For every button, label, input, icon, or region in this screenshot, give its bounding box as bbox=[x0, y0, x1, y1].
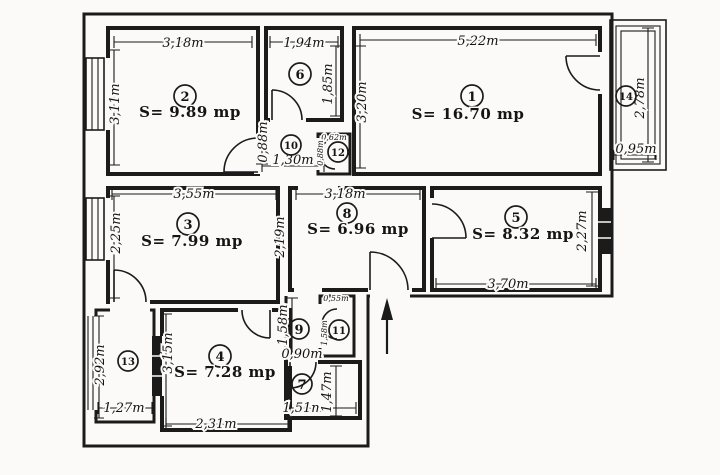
room-9-number: 9 bbox=[294, 323, 303, 338]
dim-room6-width: 1,94m bbox=[283, 36, 324, 51]
room-6-number: 6 bbox=[295, 68, 304, 83]
dim-room11-width: 0,55m bbox=[323, 294, 349, 303]
room-12-number: 12 bbox=[331, 148, 345, 159]
opening-room1-balcony bbox=[596, 52, 604, 94]
dim-hall10-height: 0,88m bbox=[256, 121, 271, 162]
opening-room3 bbox=[110, 298, 150, 306]
dim-room2-height: 3,11m bbox=[108, 83, 123, 124]
floor-plan-page: 3,18m 3,11m 1,94m 1,85m 5,22m 3,20m 2,78… bbox=[0, 0, 720, 475]
room-1-area: S= 16.70 mp bbox=[412, 105, 525, 123]
dim-balcony14-width: 0,95m bbox=[615, 142, 656, 157]
opening-entrance bbox=[368, 286, 412, 294]
room-7-number: 7 bbox=[297, 378, 306, 393]
room-4-area: S= 7.28 mp bbox=[174, 363, 276, 381]
window-room5 bbox=[598, 208, 611, 254]
room-3-number: 3 bbox=[183, 218, 192, 233]
room-11-number: 11 bbox=[332, 326, 346, 337]
dim-room5-width: 3,70m bbox=[487, 277, 528, 292]
dim-corridor9-height: 1,58m bbox=[276, 304, 291, 345]
opening-room4 bbox=[238, 306, 272, 314]
dim-room3-width: 3,55m bbox=[173, 187, 214, 202]
dim-room12-width: 0,62m bbox=[321, 133, 347, 142]
opening-corridor9 bbox=[294, 286, 322, 294]
dim-room1-width: 5,22m bbox=[457, 34, 498, 49]
dim-room3-height-right: 2,19m bbox=[273, 216, 288, 258]
dim-room7-height: 1,47m bbox=[320, 371, 335, 412]
dim-room3-height-left: 2,25m bbox=[109, 212, 124, 254]
room-3-area: S= 7.99 mp bbox=[141, 232, 243, 250]
room-10-number: 10 bbox=[284, 141, 298, 152]
opening-room6 bbox=[270, 116, 306, 124]
dim-room11-height: 1,58m bbox=[320, 320, 329, 346]
dim-room4-width: 2,31m bbox=[194, 417, 236, 432]
dim-room5-height: 2,27m bbox=[575, 210, 590, 252]
dim-balcony13-width: 1,27m bbox=[103, 401, 144, 416]
dim-room7-width: 1,51m bbox=[282, 401, 323, 416]
dim-balcony13-height: 2,92m bbox=[93, 344, 108, 386]
dim-room12-height: 0,88m bbox=[316, 140, 325, 166]
dim-room1-height: 3,20m bbox=[355, 81, 370, 122]
room-13-number: 13 bbox=[121, 357, 135, 368]
dim-room7-top: 0,90m bbox=[281, 347, 322, 362]
dim-room6-height: 1,85m bbox=[321, 63, 336, 104]
dim-hall8-width: 3,18m bbox=[324, 187, 365, 202]
dim-room2-width: 3,18m bbox=[162, 36, 203, 51]
room-5-number: 5 bbox=[511, 211, 520, 226]
room-5-area: S= 8.32 mp bbox=[472, 225, 574, 243]
room-14-number: 14 bbox=[619, 92, 633, 103]
room-1-number: 1 bbox=[467, 90, 476, 105]
floor-plan-canvas: 3,18m 3,11m 1,94m 1,85m 5,22m 3,20m 2,78… bbox=[0, 0, 720, 475]
hall-8-area: S= 6.96 mp bbox=[307, 220, 409, 238]
room-2-area: S= 9.89 mp bbox=[139, 103, 241, 121]
opening-balcony13 bbox=[110, 306, 150, 314]
